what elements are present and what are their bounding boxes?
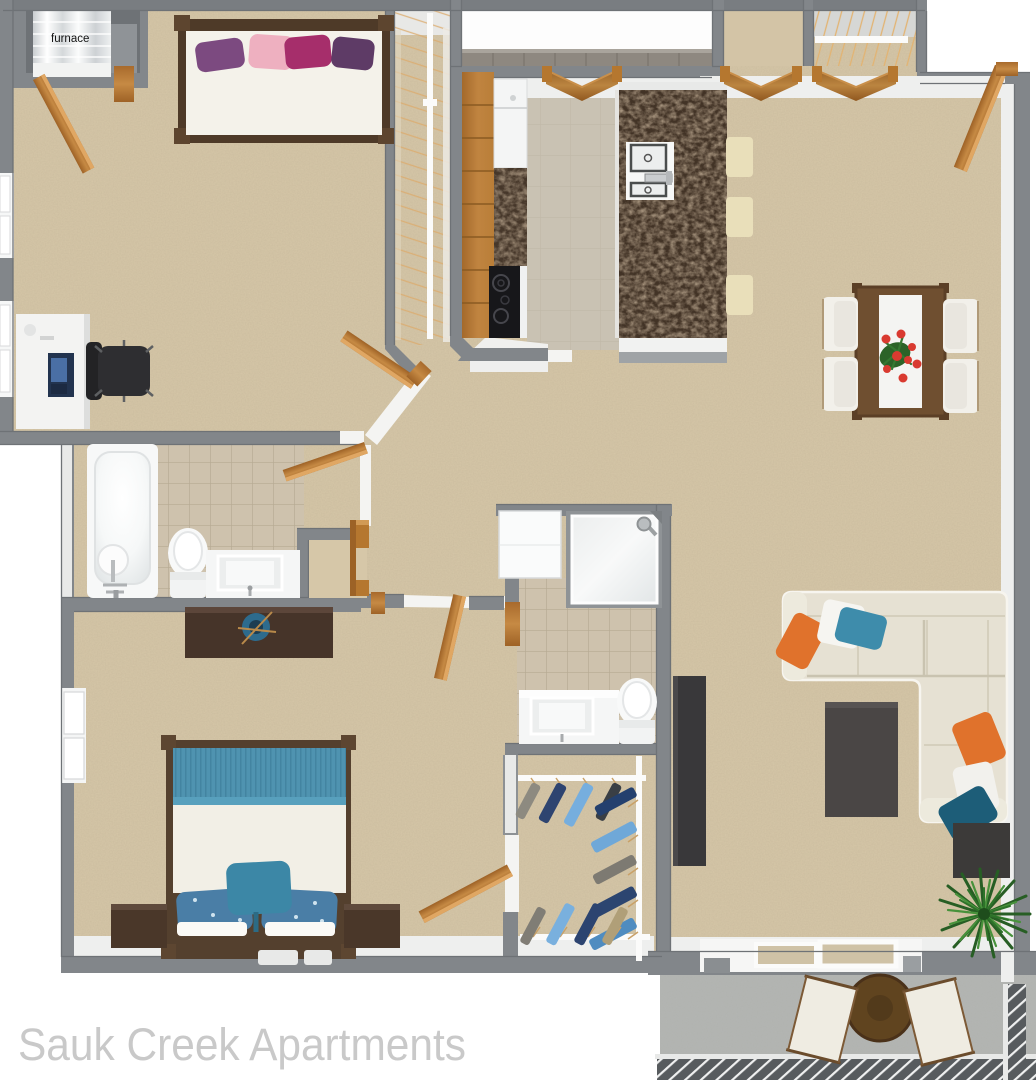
- svg-text:furnace: furnace: [51, 33, 89, 45]
- svg-text:Sauk Creek Apartments: Sauk Creek Apartments: [18, 1019, 466, 1070]
